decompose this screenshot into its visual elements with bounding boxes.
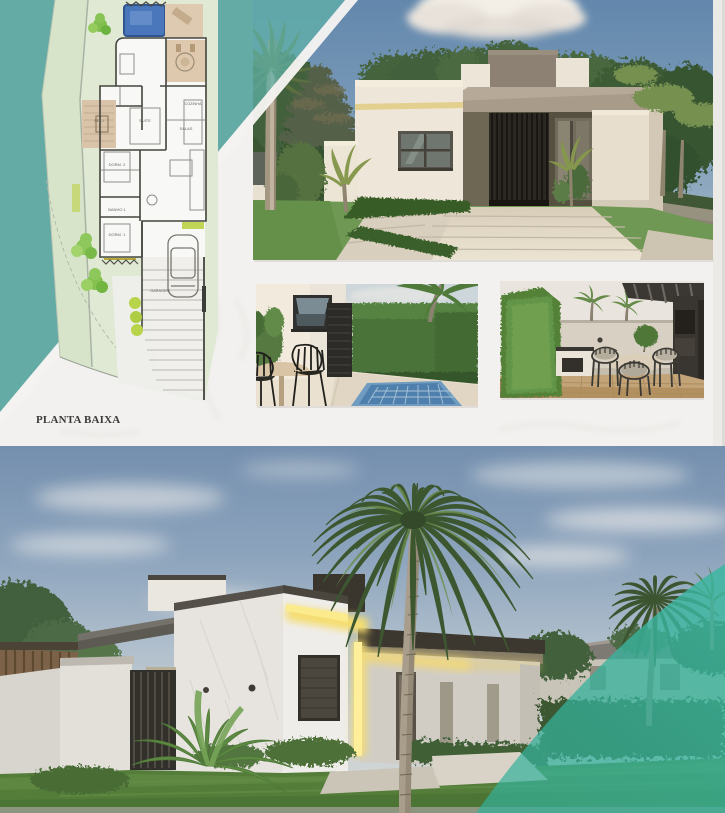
svg-text:DORM. 2: DORM. 2 <box>109 162 126 167</box>
svg-text:SEK./: SEK./ <box>94 119 105 123</box>
svg-text:GARAGEM: GARAGEM <box>150 289 169 293</box>
svg-text:SALAS: SALAS <box>180 126 193 131</box>
svg-text:SUITE: SUITE <box>139 118 151 123</box>
svg-text:DORM. 1: DORM. 1 <box>109 232 126 237</box>
svg-text:BANHO 1: BANHO 1 <box>108 207 126 212</box>
svg-text:PLANTA BAIXA: PLANTA BAIXA <box>36 414 120 426</box>
svg-text:COZINHA: COZINHA <box>184 102 202 106</box>
